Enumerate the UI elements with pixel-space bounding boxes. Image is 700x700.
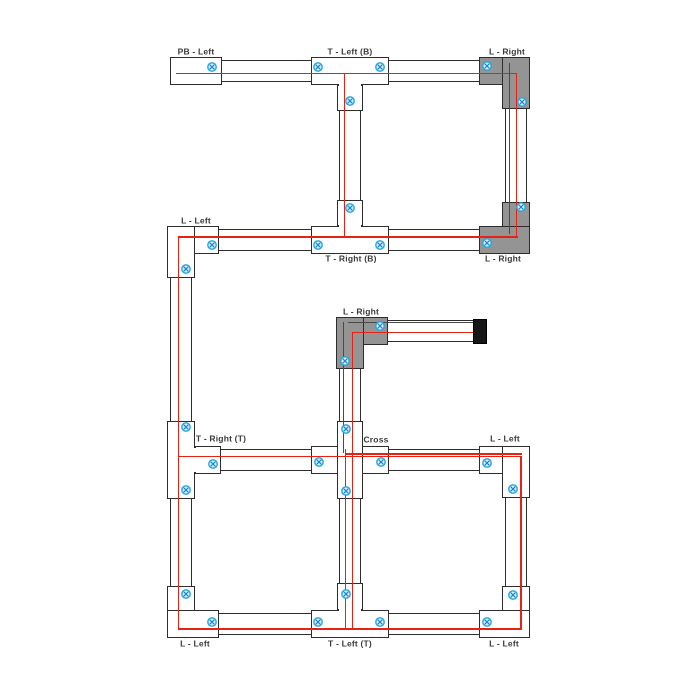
track-layout-diagram: PB - LeftT - Left (B)L - RightL - LeftT …	[0, 0, 700, 700]
power-wire-red	[178, 628, 522, 630]
screw-icon	[181, 485, 192, 496]
connector-label: T - Left (B)	[328, 47, 373, 57]
power-wire-red	[179, 236, 518, 238]
screw-icon	[482, 61, 493, 72]
power-wire-red	[345, 453, 522, 455]
screw-icon	[375, 240, 386, 251]
connector-label: L - Right	[489, 47, 525, 57]
connector-label: PB - Left	[178, 47, 215, 57]
connector-piece	[339, 606, 361, 615]
power-wire-red	[352, 332, 354, 630]
connector-piece	[190, 448, 200, 472]
power-wire-red	[178, 456, 522, 458]
connector-label: T - Left (T)	[328, 639, 372, 649]
screw-icon	[341, 589, 352, 600]
connector-label: T - Right (T)	[196, 434, 246, 444]
connector-piece	[169, 228, 193, 252]
screw-icon	[313, 617, 324, 628]
connector-label: L - Right	[485, 254, 521, 264]
screw-icon	[341, 424, 352, 435]
screw-icon	[345, 203, 356, 214]
connector-piece	[169, 612, 193, 636]
screw-icon	[181, 589, 192, 600]
connector-label: L - Left	[180, 639, 210, 649]
power-wire-red	[176, 73, 517, 75]
connector-label: L - Left	[489, 639, 519, 649]
screw-icon	[375, 617, 386, 628]
screw-icon	[508, 590, 519, 601]
connector-label: L - Right	[343, 307, 379, 317]
connector-label: L - Left	[181, 216, 211, 226]
screw-icon	[345, 96, 356, 107]
connector-piece	[339, 222, 361, 231]
power-wire-red	[520, 456, 522, 630]
screw-icon	[181, 422, 192, 433]
power-wire-dark	[348, 322, 478, 323]
screw-icon	[207, 62, 218, 73]
power-wire-red	[178, 236, 180, 630]
screw-icon	[181, 264, 192, 275]
connector-piece	[339, 80, 361, 89]
screw-icon	[314, 457, 325, 468]
connector-piece	[504, 448, 528, 472]
screw-icon	[208, 459, 219, 470]
screw-icon	[313, 240, 324, 251]
screw-icon	[207, 617, 218, 628]
screw-icon	[482, 617, 493, 628]
connector-label: T - Right (B)	[325, 254, 376, 264]
screw-icon	[482, 458, 493, 469]
screw-icon	[482, 238, 493, 249]
screw-icon	[508, 484, 519, 495]
power-wire-red	[352, 332, 479, 334]
end-cap	[473, 319, 487, 344]
screw-icon	[341, 486, 352, 497]
power-wire-dark	[509, 63, 510, 234]
screw-icon	[376, 457, 387, 468]
screw-icon	[375, 62, 386, 73]
connector-label: Cross	[363, 435, 388, 445]
power-wire-red	[345, 449, 347, 630]
screw-icon	[375, 321, 386, 332]
connector-label: L - Left	[490, 434, 520, 444]
screw-icon	[207, 240, 218, 251]
screw-icon	[340, 356, 351, 367]
screw-icon	[517, 97, 528, 108]
screw-icon	[516, 202, 527, 213]
connector-piece	[504, 612, 528, 636]
screw-icon	[313, 62, 324, 73]
